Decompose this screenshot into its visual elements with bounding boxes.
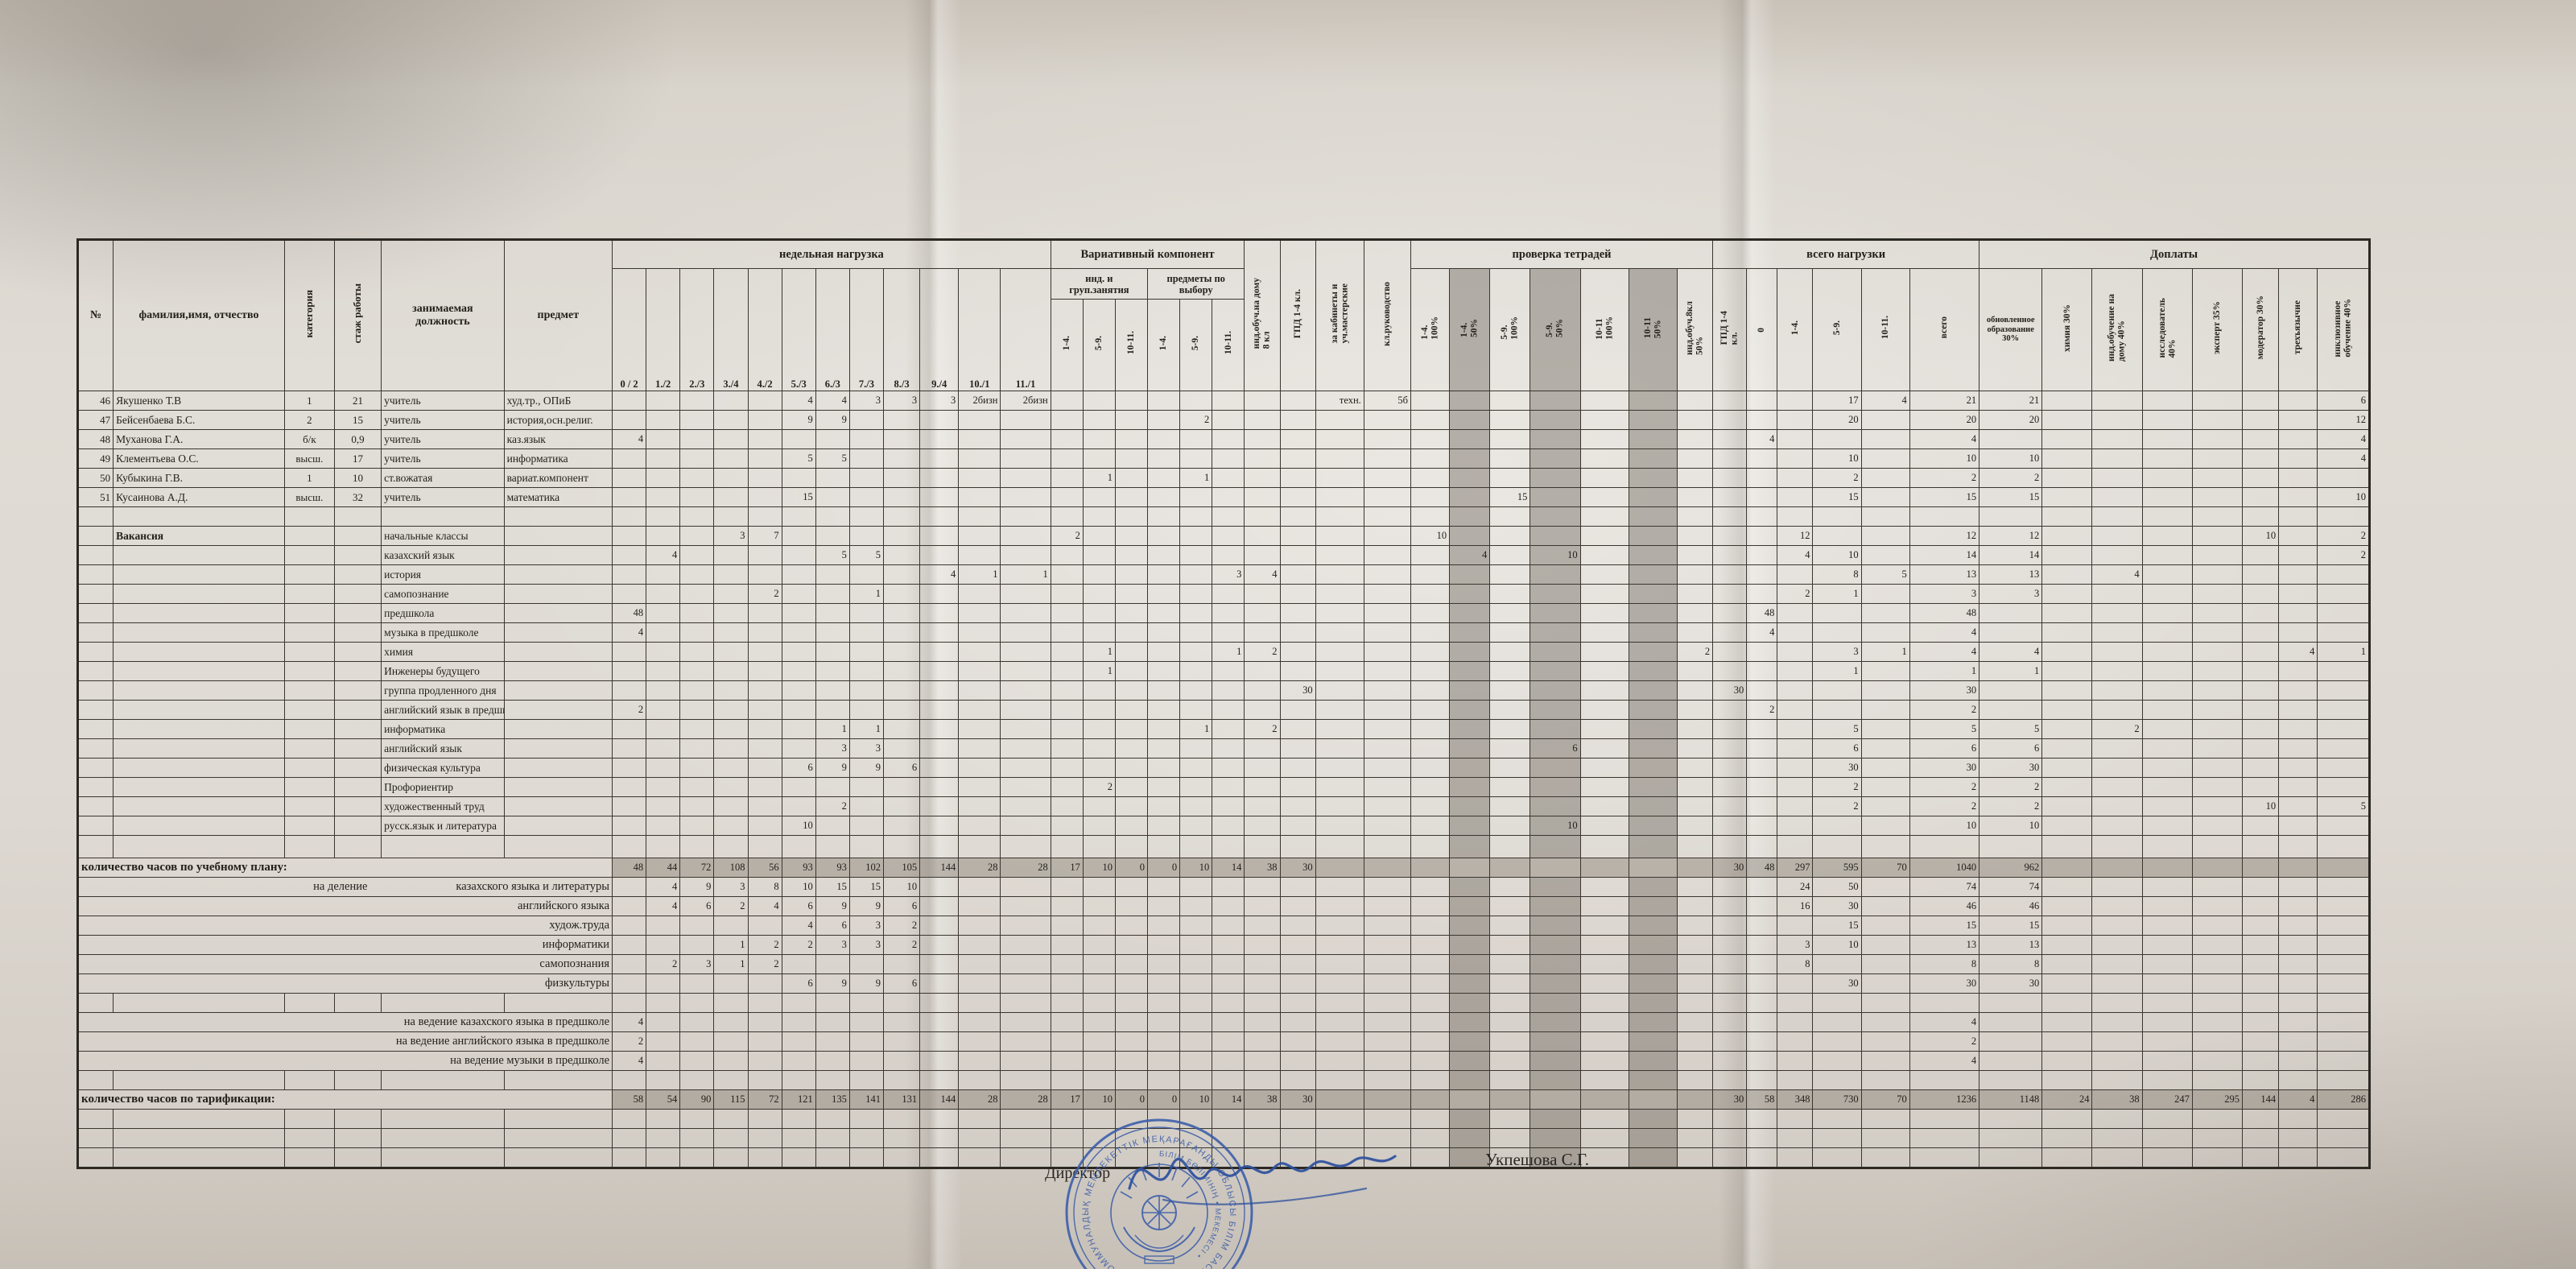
value-cell [1861, 974, 1909, 994]
value-cell: 16 [1777, 897, 1813, 916]
value-cell [1813, 1013, 1861, 1032]
value-cell [959, 1013, 1001, 1032]
value-cell [1364, 878, 1410, 897]
value-cell [884, 720, 920, 739]
column-header: стаж работы [334, 240, 381, 391]
value-cell [2142, 759, 2192, 778]
value-cell [2279, 1032, 2318, 1052]
value-cell [1245, 816, 1280, 836]
value-cell [920, 1032, 959, 1052]
subj-cell [504, 604, 612, 623]
value-cell [2243, 1052, 2279, 1071]
value-cell [1713, 662, 1747, 681]
value-cell [1530, 623, 1580, 643]
value-cell [1315, 759, 1364, 778]
value-cell [1115, 1013, 1147, 1032]
value-cell [1580, 1129, 1629, 1148]
num-cell: 49 [78, 449, 114, 469]
value-cell [1315, 778, 1364, 797]
value-cell [613, 739, 646, 759]
value-cell [714, 797, 748, 816]
value-cell [1713, 1148, 1747, 1168]
value-cell [1747, 488, 1777, 507]
value-cell: 4 [2318, 449, 2370, 469]
value-cell [2243, 391, 2279, 411]
value-cell [1148, 816, 1180, 836]
value-cell [2142, 974, 2192, 994]
value-cell [1280, 936, 1315, 955]
value-cell: 3 [815, 739, 849, 759]
value-cell: 6 [1909, 739, 1979, 759]
value-cell: 30 [1979, 974, 2042, 994]
value-cell [1083, 816, 1115, 836]
value-cell [1180, 1071, 1212, 1090]
value-cell: 144 [920, 1090, 959, 1110]
value-cell: 2 [1909, 469, 1979, 488]
value-cell [1777, 974, 1813, 994]
value-cell [613, 797, 646, 816]
value-cell: 1 [1861, 643, 1909, 662]
value-cell [1212, 527, 1245, 546]
num-cell [78, 701, 114, 720]
value-cell [2042, 955, 2092, 974]
value-cell [680, 643, 714, 662]
value-cell [680, 701, 714, 720]
value-cell [815, 1148, 849, 1168]
value-cell [1410, 955, 1449, 974]
value-cell: 13 [1979, 565, 2042, 585]
value-cell [2192, 1129, 2242, 1148]
value-cell: 3 [1212, 565, 1245, 585]
subj-cell [504, 643, 612, 662]
value-cell: 115 [714, 1090, 748, 1110]
value-cell [1861, 1110, 1909, 1129]
value-cell [2142, 739, 2192, 759]
value-cell [2042, 759, 2092, 778]
value-cell [1713, 469, 1747, 488]
value-cell [1530, 604, 1580, 623]
value-cell [646, 739, 680, 759]
value-cell: 28 [1001, 1090, 1051, 1110]
value-cell [1083, 994, 1115, 1013]
value-cell [1747, 585, 1777, 604]
value-cell [1580, 974, 1629, 994]
column-header: фамилия,имя, отчество [114, 240, 285, 391]
value-cell [1148, 1052, 1180, 1071]
value-cell [646, 623, 680, 643]
num-cell [78, 623, 114, 643]
value-cell [2042, 797, 2092, 816]
value-cell: 3 [849, 739, 883, 759]
value-cell [714, 662, 748, 681]
notebook-column-header: 1-4. 100% [1410, 269, 1449, 391]
cat-cell [284, 739, 334, 759]
value-cell [884, 469, 920, 488]
value-cell: 1 [1083, 643, 1115, 662]
value-cell [1813, 1148, 1861, 1168]
value-cell [1148, 565, 1180, 585]
value-cell [2279, 778, 2318, 797]
value-cell [646, 994, 680, 1013]
value-cell [815, 955, 849, 974]
value-cell [1629, 449, 1677, 469]
value-cell: 21 [1909, 391, 1979, 411]
value-cell [1580, 662, 1629, 681]
value-cell [2243, 701, 2279, 720]
value-cell [2042, 411, 2092, 430]
value-cell [646, 816, 680, 836]
table-row: 49Клементьева О.С.высш.17учительинформат… [78, 449, 2370, 469]
value-cell [1530, 565, 1580, 585]
value-cell: 3 [1813, 643, 1861, 662]
subj-cell [504, 527, 612, 546]
value-cell [714, 816, 748, 836]
value-cell [748, 565, 782, 585]
value-cell [1677, 1013, 1712, 1032]
value-cell [1861, 759, 1909, 778]
table-row: история411348513134 [78, 565, 2370, 585]
value-cell [815, 662, 849, 681]
value-cell [815, 816, 849, 836]
value-cell [1410, 604, 1449, 623]
value-cell: 0 [1115, 858, 1147, 878]
value-cell [1530, 488, 1580, 507]
value-cell [1861, 836, 1909, 858]
value-cell [1909, 1148, 1979, 1168]
cat-cell [284, 681, 334, 701]
value-cell: 15 [1979, 488, 2042, 507]
value-cell [1979, 836, 2042, 858]
value-cell [2042, 816, 2092, 836]
value-cell [1450, 411, 1490, 430]
value-cell [748, 1071, 782, 1090]
value-cell [613, 1148, 646, 1168]
value-cell [2279, 1148, 2318, 1168]
value-cell [2192, 565, 2242, 585]
value-cell [2042, 1148, 2092, 1168]
value-cell [1450, 739, 1490, 759]
value-cell [2142, 994, 2192, 1013]
value-cell [1861, 1052, 1909, 1071]
value-cell: 4 [2279, 643, 2318, 662]
value-cell [1280, 816, 1315, 836]
value-cell [2318, 836, 2370, 858]
value-cell [2092, 585, 2142, 604]
value-cell [1713, 623, 1747, 643]
value-cell: 0 [1148, 1090, 1180, 1110]
value-cell [959, 449, 1001, 469]
grade-column-header: 11./1 [1001, 269, 1051, 391]
value-cell [1580, 1090, 1629, 1110]
value-cell [884, 1071, 920, 1090]
value-cell [2142, 507, 2192, 527]
value-cell [884, 1052, 920, 1071]
value-cell [1713, 1013, 1747, 1032]
value-cell [1051, 916, 1083, 936]
value-cell [1115, 527, 1147, 546]
value-cell [1212, 739, 1245, 759]
cat-cell [284, 604, 334, 623]
value-cell [1813, 701, 1861, 720]
value-cell [1861, 701, 1909, 720]
value-cell [1530, 430, 1580, 449]
value-cell [2279, 469, 2318, 488]
value-cell [1490, 836, 1530, 858]
value-cell [1861, 816, 1909, 836]
value-cell [613, 836, 646, 858]
value-cell [646, 565, 680, 585]
value-cell [1677, 955, 1712, 974]
value-cell: 6 [782, 974, 815, 994]
grade-column-header: 5./3 [782, 269, 815, 391]
value-cell [1777, 469, 1813, 488]
value-cell [1861, 488, 1909, 507]
value-cell [1115, 546, 1147, 565]
grade-column-header: 6./3 [815, 269, 849, 391]
value-cell [1490, 739, 1530, 759]
value-cell [1115, 623, 1147, 643]
num-cell [78, 759, 114, 778]
value-cell [1315, 681, 1364, 701]
value-cell: 348 [1777, 1090, 1813, 1110]
value-cell [1001, 643, 1051, 662]
value-cell [1001, 720, 1051, 739]
value-cell [2042, 836, 2092, 858]
subj-cell [504, 1148, 612, 1168]
value-cell [1083, 623, 1115, 643]
value-cell [1410, 430, 1449, 449]
value-cell [1530, 916, 1580, 936]
value-cell [1629, 623, 1677, 643]
value-cell [1364, 816, 1410, 836]
value-cell [2142, 411, 2192, 430]
value-cell [815, 1129, 849, 1148]
value-cell [1115, 739, 1147, 759]
value-cell [1530, 701, 1580, 720]
value-cell [1777, 1013, 1813, 1032]
value-cell [920, 797, 959, 816]
value-cell [1530, 1013, 1580, 1032]
value-cell: 10 [1083, 1090, 1115, 1110]
value-cell [680, 836, 714, 858]
value-cell [613, 527, 646, 546]
load-column-header: 1-4. [1777, 269, 1813, 391]
value-cell [1979, 604, 2042, 623]
value-cell [646, 681, 680, 701]
value-cell [714, 585, 748, 604]
value-cell [1677, 797, 1712, 816]
value-cell [2192, 1110, 2242, 1129]
value-cell [1450, 1071, 1490, 1090]
value-cell [815, 469, 849, 488]
grade-column-header: 3./4 [714, 269, 748, 391]
value-cell [1410, 546, 1449, 565]
value-cell [1580, 701, 1629, 720]
value-cell: 595 [1813, 858, 1861, 878]
value-cell [646, 916, 680, 936]
value-cell [1315, 527, 1364, 546]
pos-cell: учитель [382, 411, 504, 430]
value-cell [1490, 430, 1530, 449]
value-cell [714, 469, 748, 488]
value-cell [782, 1071, 815, 1090]
value-cell [1777, 1148, 1813, 1168]
value-cell [1001, 507, 1051, 527]
table-row: русск.язык и литература10101010 [78, 816, 2370, 836]
value-cell [2279, 955, 2318, 974]
value-cell [680, 1110, 714, 1129]
value-cell [2042, 974, 2092, 994]
value-cell [2192, 739, 2242, 759]
value-cell [1083, 546, 1115, 565]
value-cell: 10 [1180, 858, 1212, 878]
value-cell [1364, 936, 1410, 955]
value-cell: 2 [1909, 1032, 1979, 1052]
value-cell [2318, 507, 2370, 527]
value-cell [1364, 527, 1410, 546]
value-cell [1629, 739, 1677, 759]
value-cell: 4 [920, 565, 959, 585]
value-cell [613, 720, 646, 739]
value-cell [1410, 739, 1449, 759]
value-cell: 17 [1051, 1090, 1083, 1110]
value-cell [1083, 527, 1115, 546]
value-cell [2243, 643, 2279, 662]
value-cell [1909, 994, 1979, 1013]
value-cell [959, 1071, 1001, 1090]
value-cell [2192, 430, 2242, 449]
value-cell: 3 [849, 936, 883, 955]
value-cell [1713, 739, 1747, 759]
value-cell [2279, 739, 2318, 759]
value-cell [680, 546, 714, 565]
value-cell [1747, 1148, 1777, 1168]
value-cell [680, 527, 714, 546]
value-cell [1410, 797, 1449, 816]
value-cell: 30 [1713, 681, 1747, 701]
value-cell [1580, 488, 1629, 507]
value-cell [815, 1013, 849, 1032]
bonus-column-header: химия 30% [2042, 269, 2092, 391]
value-cell [2092, 816, 2142, 836]
value-cell [1148, 507, 1180, 527]
value-cell: 2 [2318, 527, 2370, 546]
value-cell [959, 816, 1001, 836]
value-cell [1315, 1071, 1364, 1090]
value-cell: 6 [884, 974, 920, 994]
exp-cell [334, 623, 381, 643]
value-cell: 30 [1280, 1090, 1315, 1110]
value-cell [1713, 565, 1747, 585]
value-cell [1861, 797, 1909, 816]
value-cell [1909, 836, 1979, 858]
value-cell [1861, 585, 1909, 604]
value-cell [1713, 430, 1747, 449]
value-cell [1490, 449, 1530, 469]
value-cell [1148, 797, 1180, 816]
value-cell [1450, 936, 1490, 955]
value-cell [2092, 643, 2142, 662]
value-cell: 1 [1180, 469, 1212, 488]
value-cell: 3 [1777, 936, 1813, 955]
value-cell [748, 974, 782, 994]
value-cell: 2 [2318, 546, 2370, 565]
value-cell [1148, 469, 1180, 488]
value-cell [2042, 897, 2092, 916]
grade-column-header: 0 / 2 [613, 269, 646, 391]
value-cell [849, 778, 883, 797]
value-cell [714, 411, 748, 430]
value-cell [2318, 701, 2370, 720]
value-cell [2243, 720, 2279, 739]
value-cell [748, 836, 782, 858]
value-cell [1450, 955, 1490, 974]
value-cell [2142, 1013, 2192, 1032]
column-header: категория [284, 240, 334, 391]
tariff-table: №фамилия,имя, отчествокатегориястаж рабо… [76, 238, 2371, 1169]
value-cell [2042, 430, 2092, 449]
value-cell [1180, 546, 1212, 565]
value-cell [1490, 1013, 1530, 1032]
value-cell [782, 1013, 815, 1032]
table-row: на ведение казахского языка в предшколе4… [78, 1013, 2370, 1032]
value-cell [1813, 507, 1861, 527]
value-cell [815, 604, 849, 623]
value-cell [2192, 936, 2242, 955]
value-cell: 17 [1051, 858, 1083, 878]
value-cell [849, 469, 883, 488]
value-cell: 5 [1909, 720, 1979, 739]
value-cell [1747, 916, 1777, 936]
name-cell [114, 1071, 285, 1090]
value-cell [1629, 585, 1677, 604]
value-cell [646, 797, 680, 816]
value-cell [1861, 720, 1909, 739]
value-cell [2279, 449, 2318, 469]
value-cell: 7 [748, 527, 782, 546]
value-cell [748, 797, 782, 816]
pos-cell: начальные классы [382, 527, 504, 546]
value-cell [646, 662, 680, 681]
value-cell [2243, 469, 2279, 488]
value-cell [2192, 662, 2242, 681]
value-cell [815, 507, 849, 527]
grade-column-header: 2./3 [680, 269, 714, 391]
value-cell [920, 1013, 959, 1032]
value-cell [1629, 430, 1677, 449]
value-cell [1083, 585, 1115, 604]
column-header: предмет [504, 240, 612, 391]
value-cell [1410, 701, 1449, 720]
value-cell [1212, 1032, 1245, 1052]
value-cell [1450, 778, 1490, 797]
value-cell: 10 [1813, 449, 1861, 469]
value-cell [1212, 546, 1245, 565]
value-cell [1148, 643, 1180, 662]
value-cell [849, 1071, 883, 1090]
value-cell [1083, 488, 1115, 507]
value-cell [2142, 720, 2192, 739]
value-cell [1747, 778, 1777, 797]
table-row [78, 1071, 2370, 1090]
value-cell: 9 [815, 974, 849, 994]
value-cell [748, 778, 782, 797]
value-cell [1148, 701, 1180, 720]
value-cell [1180, 681, 1212, 701]
value-cell [748, 1032, 782, 1052]
value-cell [1083, 430, 1115, 449]
value-cell [2142, 1052, 2192, 1071]
